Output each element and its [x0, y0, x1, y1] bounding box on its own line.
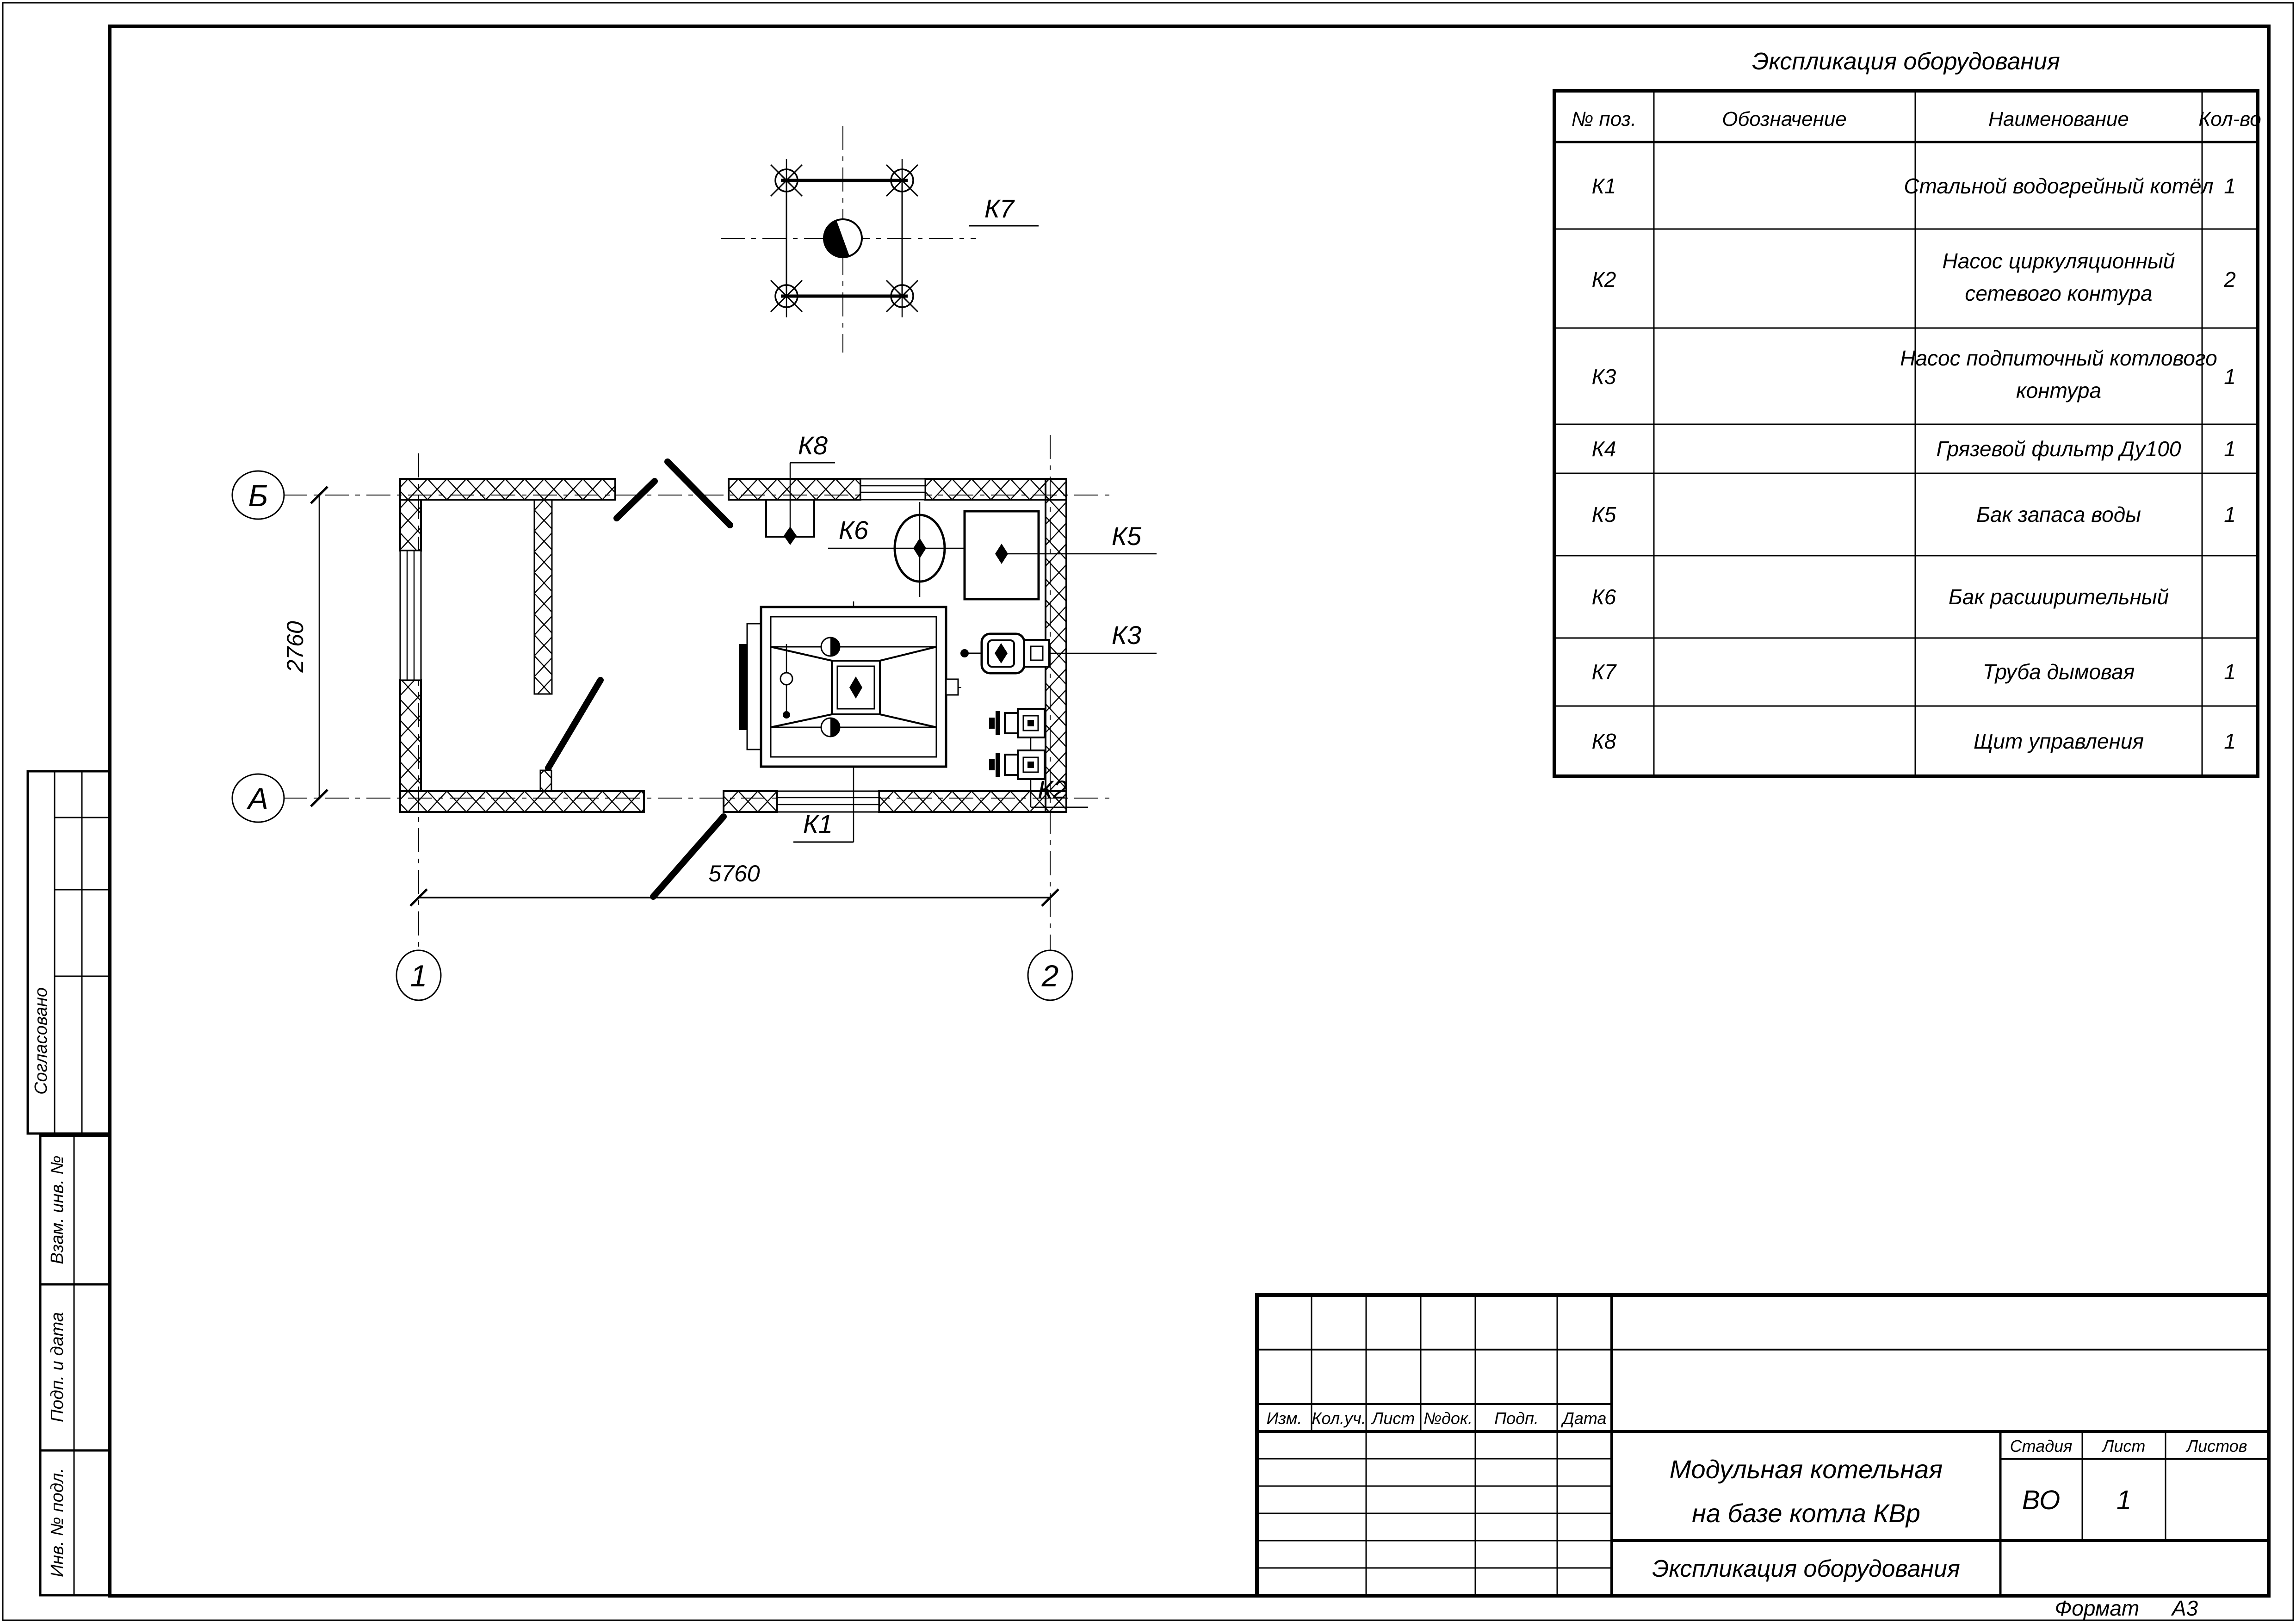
- tb-col-ndok: №док.: [1423, 1409, 1473, 1428]
- label-k5: К5: [1112, 521, 1142, 551]
- svg-text:Бак расширительный: Бак расширительный: [1949, 585, 2169, 609]
- tb-col-data: Дата: [1561, 1409, 1607, 1428]
- svg-text:К6: К6: [1592, 585, 1616, 609]
- svg-text:1: 1: [2224, 502, 2236, 527]
- dimension-5760-text: 5760: [708, 861, 760, 886]
- tb-col-podp: Подп.: [1494, 1409, 1539, 1428]
- format-label: Формат: [2055, 1596, 2140, 1620]
- label-k1: К1: [803, 809, 833, 838]
- tb-doc-name: Экспликация оборудования: [1652, 1555, 1960, 1582]
- sidebar-label-inv-orig: Инв. № подл.: [48, 1468, 67, 1577]
- axis-label-2: 2: [1041, 959, 1059, 993]
- col-header-designation: Обозначение: [1722, 108, 1847, 130]
- dimension-2760-text: 2760: [282, 621, 308, 673]
- svg-text:К2: К2: [1592, 267, 1616, 291]
- svg-text:сетевого контура: сетевого контура: [1965, 281, 2152, 305]
- svg-text:1: 1: [2224, 174, 2236, 198]
- svg-text:Стальной водогрейный котёл: Стальной водогрейный котёл: [1904, 174, 2213, 198]
- sidebar-label-sign-date: Подп. и дата: [48, 1312, 67, 1422]
- label-k6: К6: [839, 515, 869, 545]
- label-k3: К3: [1112, 620, 1141, 650]
- label-k8: К8: [798, 431, 828, 460]
- svg-text:контура: контура: [2016, 378, 2101, 403]
- col-header-qty: Кол-во: [2198, 108, 2261, 130]
- tb-sheets-label: Листов: [2185, 1437, 2247, 1456]
- tb-sheet-label: Лист: [2102, 1437, 2146, 1456]
- col-header-pos: № поз.: [1572, 108, 1637, 130]
- label-k2: К2: [1038, 775, 1067, 804]
- tb-stage-value: ВО: [2022, 1485, 2061, 1515]
- tb-sheet-value: 1: [2117, 1485, 2131, 1515]
- axis-label-b: Б: [248, 478, 268, 513]
- axis-label-1: 1: [410, 959, 427, 993]
- svg-text:К1: К1: [1592, 174, 1616, 198]
- svg-text:Щит управления: Щит управления: [1974, 729, 2144, 753]
- outer-border: [3, 3, 2293, 1620]
- tb-project-line1: Модульная котельная: [1670, 1455, 1943, 1484]
- tb-col-koluch: Кол.уч.: [1312, 1409, 1366, 1428]
- svg-text:2: 2: [2223, 267, 2236, 291]
- svg-text:К5: К5: [1592, 502, 1616, 527]
- tb-col-izm: Изм.: [1267, 1409, 1302, 1428]
- svg-text:К8: К8: [1592, 729, 1616, 753]
- axis-label-a: А: [246, 781, 268, 816]
- svg-text:1: 1: [2224, 437, 2236, 461]
- drawing-sheet: Согласовано Взам. инв. № Подп. и дата Ин…: [0, 0, 2296, 1623]
- svg-text:1: 1: [2224, 365, 2236, 389]
- svg-text:Бак запаса воды: Бак запаса воды: [1976, 502, 2141, 527]
- tb-stage-label: Стадия: [2010, 1437, 2073, 1456]
- svg-text:К3: К3: [1592, 365, 1616, 389]
- equipment-table-title: Экспликация оборудования: [1752, 48, 2060, 75]
- tb-project-line2: на базе котла КВр: [1692, 1499, 1920, 1528]
- svg-text:Грязевой фильтр Ду100: Грязевой фильтр Ду100: [1937, 437, 2181, 461]
- svg-text:К7: К7: [1592, 660, 1617, 684]
- svg-text:1: 1: [2224, 729, 2236, 753]
- svg-text:1: 1: [2224, 660, 2236, 684]
- drawing-canvas: Согласовано Взам. инв. № Подп. и дата Ин…: [0, 0, 2296, 1623]
- svg-text:Насос подпиточный котлового: Насос подпиточный котлового: [1900, 346, 2217, 370]
- svg-text:К4: К4: [1592, 437, 1616, 461]
- label-k7: К7: [984, 194, 1015, 223]
- tb-col-list: Лист: [1371, 1409, 1415, 1428]
- svg-text:Насос циркуляционный: Насос циркуляционный: [1943, 249, 2175, 273]
- sidebar-label-approved: Согласовано: [31, 987, 51, 1095]
- svg-text:Труба дымовая: Труба дымовая: [1983, 660, 2135, 684]
- sidebar-label-subst-inv: Взам. инв. №: [48, 1155, 67, 1264]
- col-header-name: Наименование: [1988, 108, 2129, 130]
- format-value: А3: [2171, 1596, 2198, 1620]
